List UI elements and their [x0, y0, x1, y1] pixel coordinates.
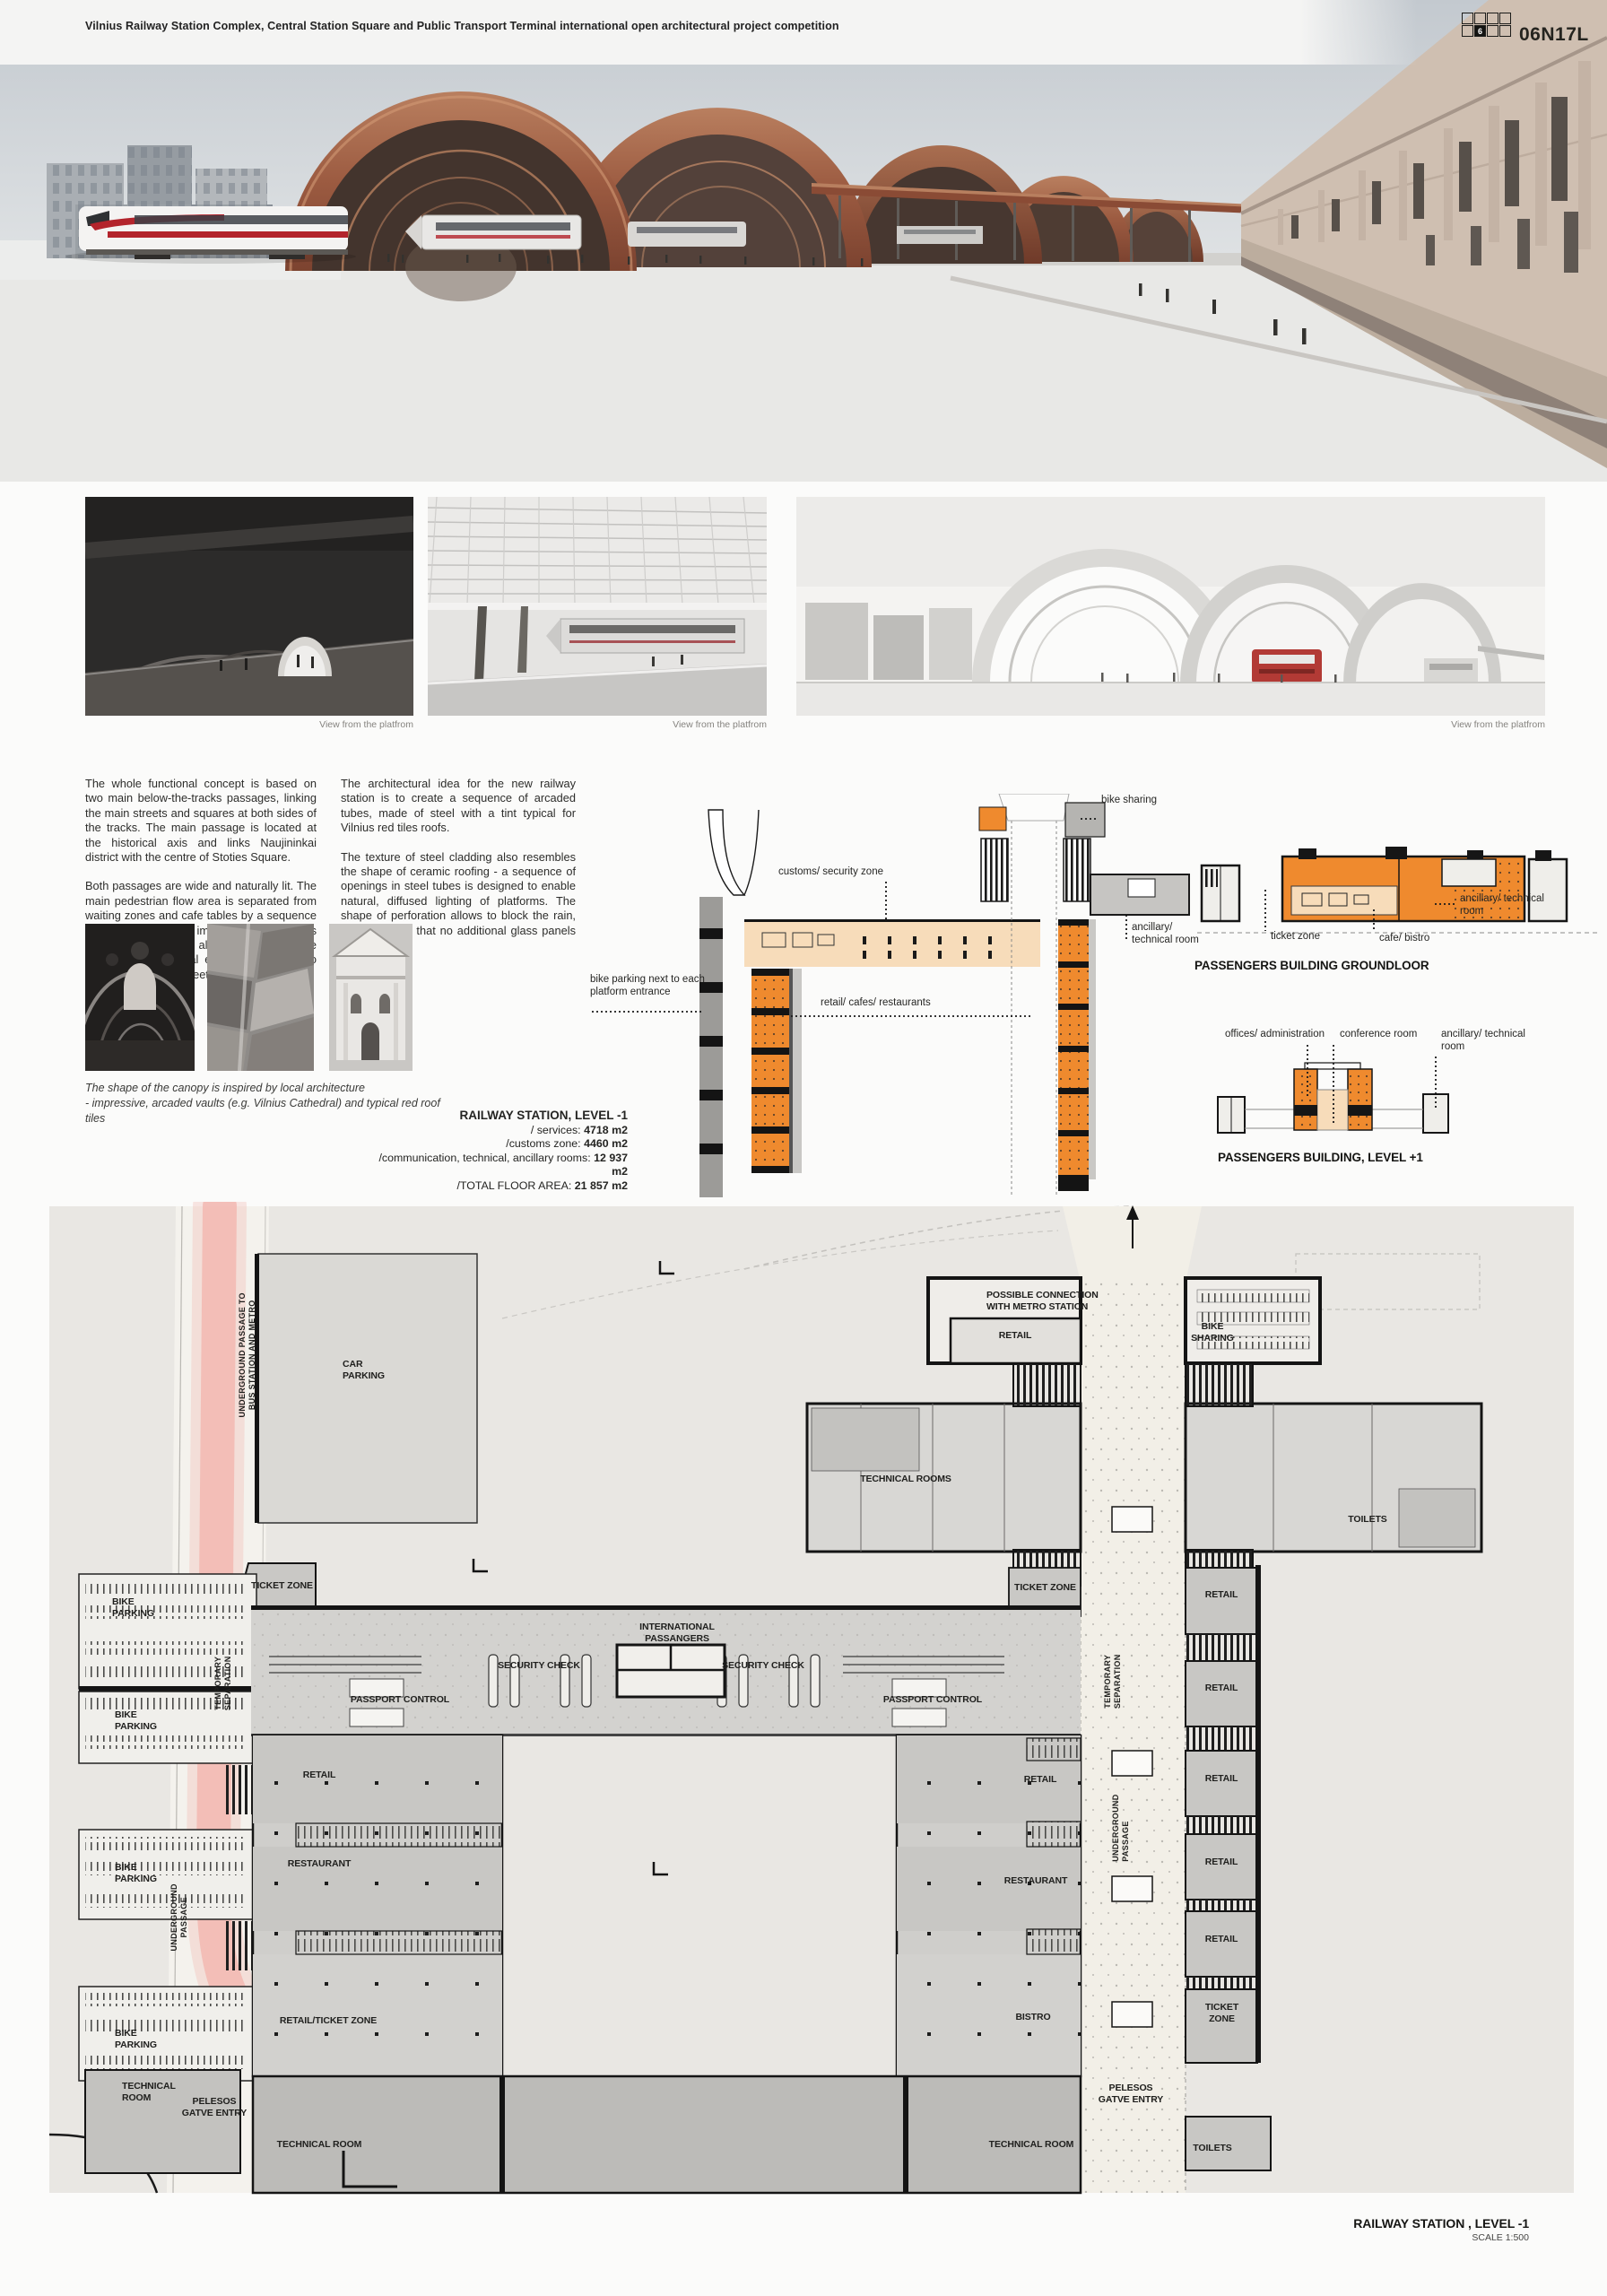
plan-label-retail: RETAIL — [287, 1770, 352, 1781]
plan-label-toilets: TOILETS — [1181, 2143, 1244, 2154]
summary-row: /TOTAL FLOOR AREA: 21 857 m2 — [372, 1179, 628, 1194]
render-platform-dark — [85, 497, 413, 716]
plan-label-international-passangers: INTERNATIONAL PASSANGERS — [619, 1622, 735, 1644]
plan-label-retail: RETAIL — [1194, 1773, 1248, 1785]
level1-label-conference: conference room — [1340, 1029, 1417, 1041]
render-arches-panorama — [796, 497, 1545, 716]
groundfloor-label-ticket-zone: ticket zone — [1271, 931, 1320, 944]
grid-cell — [1462, 13, 1473, 24]
plan-label-technical-rooms: TECHNICAL ROOMS — [856, 1474, 955, 1485]
groundfloor-label-cafe-bistro: cafe/ bistro — [1379, 933, 1429, 945]
plan-label-pelesos-entry: PELESOS GATVE ENTRY — [1096, 2083, 1166, 2105]
plan-label-temporary-separation: TEMPORARY SEPARATION — [1103, 1628, 1123, 1735]
plan-label-ticket-zone: TICKET ZONE — [251, 1580, 323, 1592]
groundfloor-title: PASSENGERS BUILDING GROUNDLOOR — [1194, 959, 1429, 972]
plan-label-technical-room: TECHNICAL ROOM — [122, 2081, 185, 2103]
grid-cell-active: 6 — [1474, 25, 1486, 37]
paragraph: The whole functional concept is based on… — [85, 777, 317, 865]
plan-label-technical-room: TECHNICAL ROOM — [274, 2139, 364, 2151]
plan-label-underground-to-bus: UNDERGROUND PASSAGE TO BUS STATION AND M… — [238, 1288, 257, 1422]
section-label-customs: customs/ security zone — [758, 866, 883, 879]
plan-label-bistro: BISTRO — [1001, 2012, 1065, 2023]
competition-board: Vilnius Railway Station Complex, Central… — [0, 0, 1607, 2296]
plan-label-security-check: SECURITY CHECK — [489, 1660, 589, 1672]
summary-title: RAILWAY STATION, LEVEL -1 — [372, 1109, 628, 1123]
plan-label-restaurant: RESTAURANT — [278, 1858, 360, 1870]
plan-label-ticket-zone: TICKET ZONE — [1012, 1582, 1079, 1594]
photo-cathedral-facade — [329, 924, 413, 1071]
plan-label-bike-parking: BIKE PARKING — [115, 2028, 164, 2050]
section-label-retail: retail/ cafes/ restaurants — [821, 997, 1027, 1010]
plan-label-retail: RETAIL — [1194, 1683, 1248, 1694]
level1-label-ancillary: ancillary/ technical room — [1441, 1029, 1526, 1053]
plan-label-underground-passage: UNDERGROUND PASSAGE — [169, 1877, 189, 1958]
plan-label-retail: RETAIL — [984, 1330, 1047, 1342]
plan-label-bike-sharing: BIKE SHARING — [1184, 1321, 1241, 1344]
plan-label-retail-ticket-zone: RETAIL/TICKET ZONE — [269, 2015, 387, 2027]
photo-arcade-vault — [85, 924, 195, 1071]
plan-label-bike-parking: BIKE PARKING — [115, 1862, 164, 1884]
render-caption: View from the platfrom — [796, 719, 1545, 730]
groundfloor-label-ancillary: ancillary/ technical room — [1460, 893, 1545, 918]
plan-label-bike-parking: BIKE PARKING — [112, 1596, 161, 1619]
plan-label-retail: RETAIL — [1008, 1774, 1073, 1786]
floorplan-title: RAILWAY STATION , LEVEL -1 — [1260, 2216, 1529, 2231]
photo-roof-tiles-aerial — [207, 924, 314, 1071]
plan-label-car-parking: CAR PARKING — [343, 1359, 396, 1381]
level1-title: PASSENGERS BUILDING, LEVEL +1 — [1218, 1151, 1423, 1164]
paragraph: The architectural idea for the new railw… — [341, 777, 576, 836]
floorplan-scale: SCALE 1:500 — [1260, 2232, 1529, 2243]
board-code: 06N17L — [1519, 24, 1589, 46]
plan-label-retail: RETAIL — [1194, 1934, 1248, 1945]
plan-label-temporary-separation: TEMPORARY SEPARATION — [213, 1630, 233, 1737]
render-caption: View from the platfrom — [428, 719, 767, 730]
render-caption: View from the platfrom — [85, 719, 413, 730]
board-code-grid: 6 — [1462, 13, 1509, 35]
summary-row: /customs zone: 4460 m2 — [372, 1137, 628, 1152]
plan-label-possible-connection: POSSIBLE CONNECTION WITH METRO STATION — [986, 1290, 1099, 1312]
plan-label-retail: RETAIL — [1194, 1857, 1248, 1868]
summary-row: / services: 4718 m2 — [372, 1124, 628, 1138]
section-label-bike-sharing: bike sharing — [1101, 795, 1157, 807]
section-label-bike-parking: bike parking next to each platform entra… — [590, 974, 723, 998]
plan-label-toilets: TOILETS — [1327, 1514, 1408, 1526]
level1-label-offices: offices/ administration — [1225, 1029, 1325, 1041]
plan-label-bike-parking: BIKE PARKING — [115, 1709, 164, 1732]
plan-label-restaurant: RESTAURANT — [995, 1875, 1077, 1887]
plan-label-pelesos-entry: PELESOS GATVE ENTRY — [179, 2096, 249, 2118]
render-waffle-ceiling — [428, 497, 767, 716]
summary-row: /communication, technical, ancillary roo… — [372, 1152, 628, 1179]
plan-label-retail: RETAIL — [1194, 1589, 1248, 1601]
plan-label-security-check: SECURITY CHECK — [713, 1660, 813, 1672]
board-title: Vilnius Railway Station Complex, Central… — [85, 20, 1072, 32]
plan-label-ticket-zone: TICKET ZONE — [1197, 2002, 1247, 2024]
plan-label-passport-control: PASSPORT CONTROL — [882, 1694, 983, 1706]
area-summary: RAILWAY STATION, LEVEL -1 / services: 47… — [372, 1109, 628, 1194]
plan-label-underground-passage: UNDERGROUND PASSAGE — [1111, 1799, 1131, 1862]
plan-label-passport-control: PASSPORT CONTROL — [350, 1694, 450, 1706]
plan-label-technical-room: TECHNICAL ROOM — [986, 2139, 1076, 2151]
hero-render — [0, 0, 1607, 482]
